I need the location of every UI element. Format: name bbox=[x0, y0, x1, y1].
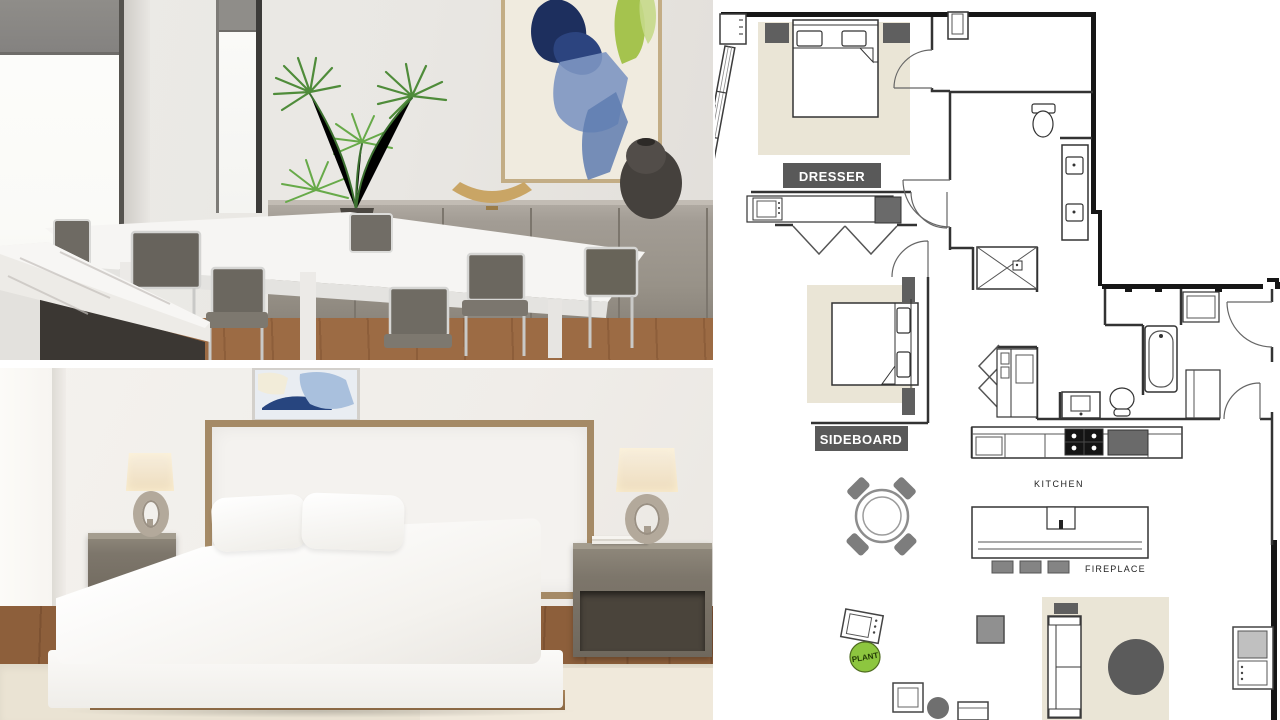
kitchen: KITCHEN bbox=[972, 427, 1182, 489]
dining-table-symbol bbox=[856, 490, 908, 542]
toilet-symbol bbox=[1032, 104, 1055, 137]
bedroom-photo bbox=[0, 368, 713, 720]
dining-chair bbox=[206, 268, 268, 360]
island-fireplace: FIREPLACE bbox=[972, 507, 1148, 574]
sofa-symbol bbox=[1048, 616, 1081, 718]
coffee-table-symbol bbox=[1108, 639, 1164, 695]
nightstand-symbol bbox=[902, 277, 915, 302]
svg-text:SIDEBOARD: SIDEBOARD bbox=[820, 432, 903, 447]
appliance-symbol bbox=[1108, 430, 1148, 455]
dining-room-overlay bbox=[0, 0, 713, 360]
dining-area bbox=[845, 476, 917, 557]
bed-symbol bbox=[793, 20, 878, 117]
stool-symbol bbox=[992, 561, 1013, 573]
entry-door bbox=[948, 12, 968, 39]
sideboard-label: SIDEBOARD bbox=[815, 426, 908, 451]
nightstand-symbol bbox=[902, 388, 915, 415]
bathroom1 bbox=[977, 104, 1088, 289]
fireplace-label: FIREPLACE bbox=[1085, 564, 1146, 574]
palm-plant bbox=[274, 58, 446, 230]
shower-symbol bbox=[977, 247, 1037, 289]
closet-shelves bbox=[1183, 292, 1219, 322]
bathroom2 bbox=[1062, 292, 1220, 418]
dining-chair bbox=[350, 214, 392, 252]
pillow bbox=[301, 492, 405, 552]
stool-symbol bbox=[1048, 561, 1069, 573]
nightstand-shelf bbox=[580, 591, 705, 651]
dresser-cabinet bbox=[747, 196, 901, 223]
dining-chair bbox=[384, 288, 452, 348]
pantry bbox=[979, 345, 1037, 417]
closet-bifold-doors bbox=[793, 226, 897, 254]
closet-symbol bbox=[1186, 370, 1220, 418]
floor-plan-drawing: DRESSER bbox=[715, 0, 1280, 720]
console-symbol bbox=[1054, 603, 1078, 614]
table-lamp-shade bbox=[126, 453, 174, 491]
nightstand-symbol bbox=[765, 23, 789, 43]
window-wall bbox=[715, 45, 735, 720]
vanity-sinks bbox=[1062, 145, 1088, 240]
sink-symbol bbox=[1062, 392, 1100, 418]
table-lamp-shade bbox=[616, 448, 678, 492]
svg-text:DRESSER: DRESSER bbox=[799, 169, 865, 184]
bed-symbol bbox=[832, 299, 918, 388]
kitchen-label: KITCHEN bbox=[1034, 479, 1084, 489]
window-symbol bbox=[720, 14, 746, 44]
nightstand bbox=[573, 543, 712, 657]
nightstand-symbol bbox=[883, 23, 910, 43]
tv-unit-symbol bbox=[1233, 627, 1273, 689]
ottoman-symbol bbox=[977, 616, 1004, 643]
pillow bbox=[211, 494, 308, 553]
toilet-symbol bbox=[1110, 388, 1134, 416]
table-lamp-base bbox=[625, 494, 669, 544]
artwork-abstract bbox=[252, 368, 360, 422]
plant-marker: PLANT bbox=[850, 642, 880, 672]
dresser-label: DRESSER bbox=[783, 163, 881, 188]
bathtub-symbol bbox=[1145, 326, 1177, 392]
table-lamp-base bbox=[133, 491, 169, 537]
side-tables bbox=[893, 683, 988, 720]
stove-symbol bbox=[1065, 429, 1103, 455]
stool-symbol bbox=[1020, 561, 1041, 573]
vase bbox=[620, 138, 682, 219]
bowl-base bbox=[486, 206, 498, 210]
stool-symbol bbox=[927, 697, 949, 719]
wall-unit-symbol bbox=[841, 609, 883, 643]
dining-chair bbox=[462, 254, 528, 356]
decorative-bowl bbox=[452, 182, 532, 203]
collage: DRESSER bbox=[0, 0, 1280, 720]
floor-plan: DRESSER bbox=[715, 0, 1280, 720]
dining-room-photo bbox=[0, 0, 713, 360]
